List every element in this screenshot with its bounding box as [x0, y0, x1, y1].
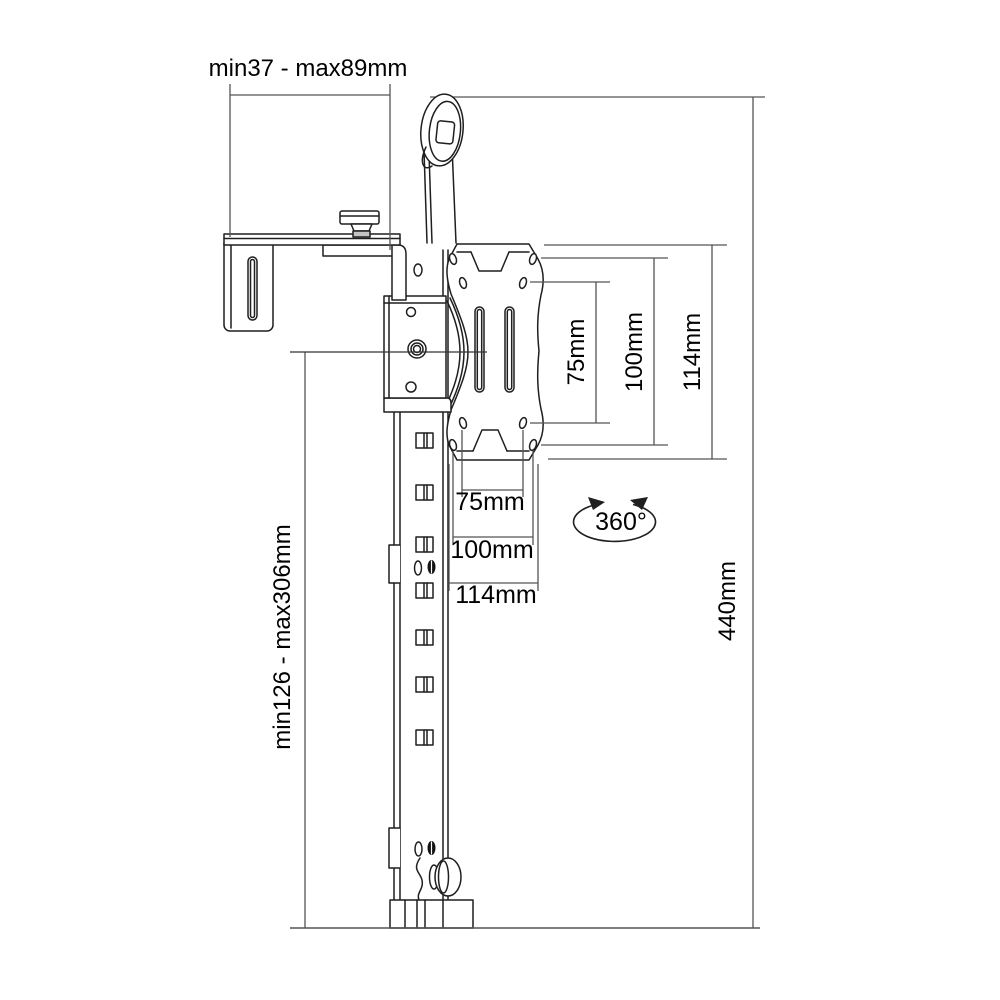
dim-label-vesa-horizontal-75: 75mm	[455, 488, 524, 516]
square-hole	[416, 583, 433, 598]
thumbscrew-collar	[353, 231, 370, 237]
block-hole-top	[407, 308, 416, 317]
thumbscrew-neck	[351, 224, 372, 231]
knob-bracket	[417, 858, 423, 900]
pole-oval-hole-bottom	[415, 842, 422, 856]
pole-side-tab	[389, 545, 400, 583]
clamp-top-arm	[224, 234, 400, 245]
square-hole	[416, 537, 433, 552]
dim-label-vesa-horizontal-100: 100mm	[450, 536, 533, 564]
rotation-label: 360°	[595, 508, 647, 536]
dim-label-vesa-vertical-114: 114mm	[679, 313, 706, 391]
base-foot	[390, 858, 473, 928]
dim-label-vesa-vertical-75: 75mm	[563, 319, 590, 386]
square-hole	[416, 730, 433, 745]
pole-square-holes	[416, 433, 433, 745]
plate-slot	[505, 307, 514, 392]
dim-label-vesa-horizontal-114: 114mm	[455, 581, 537, 609]
pole-oval-hole	[415, 561, 422, 575]
slider-block	[384, 296, 451, 412]
thumbscrew	[340, 211, 379, 237]
pole-oval-hole-upper	[414, 264, 422, 276]
mount-dimension-diagram: min37 - max89mm 75mm 100mm 114mm 75mm 10…	[0, 0, 1000, 1000]
dim-label-total-height: 440mm	[714, 561, 741, 641]
clamp-slot	[248, 257, 257, 320]
dim-label-clamp-depth: min37 - max89mm	[209, 55, 408, 82]
dim-label-vesa-vertical-100: 100mm	[621, 312, 648, 392]
clamp-slide-bar	[323, 245, 397, 256]
dim-label-height-range: min126 - max306mm	[269, 524, 296, 749]
base-block	[390, 900, 473, 928]
clamp-bend	[392, 245, 406, 300]
square-hole	[416, 677, 433, 692]
block-hole-bottom	[406, 382, 416, 392]
diagram-canvas: min37 - max89mm 75mm 100mm 114mm 75mm 10…	[0, 0, 1000, 1000]
square-hole	[416, 485, 433, 500]
thumbscrew-cap	[340, 211, 379, 224]
pole-side-tab-bottom	[389, 828, 400, 868]
plate-slot	[475, 307, 484, 392]
slider-block-lip	[384, 398, 451, 412]
square-hole	[416, 433, 433, 448]
square-hole	[416, 630, 433, 645]
